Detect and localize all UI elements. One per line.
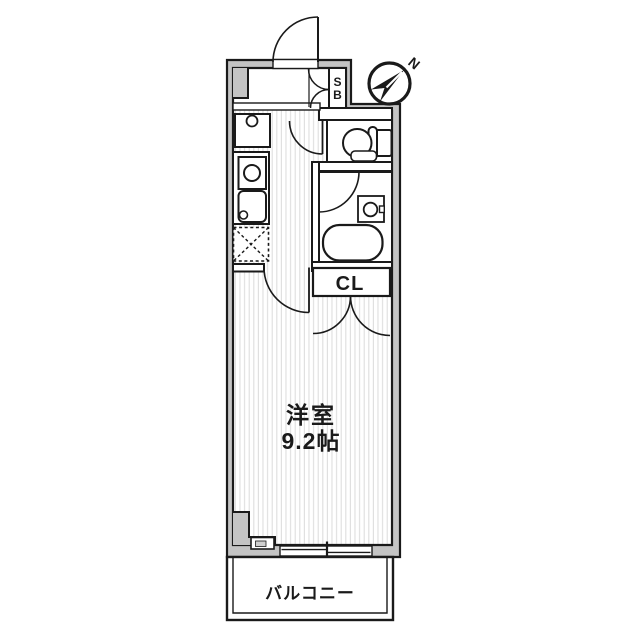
closet-label: CL xyxy=(336,273,365,295)
shoe-box-label-b: B xyxy=(333,88,342,102)
main-room-size-label: 9.2帖 xyxy=(282,428,341,454)
corner-column xyxy=(233,68,248,98)
partition-toilet-top xyxy=(319,108,392,120)
floorplan-drawing: N S B CL 洋室 9.2帖 バルコニー xyxy=(0,0,640,640)
shoe-box-label-s: S xyxy=(333,75,341,89)
entrance-step xyxy=(233,103,320,110)
bathtub xyxy=(323,225,383,261)
north-label: N xyxy=(405,54,423,73)
floorplan: N S B CL 洋室 9.2帖 バルコニー xyxy=(0,0,640,640)
entrance-door xyxy=(273,17,318,69)
washing-machine-space xyxy=(234,228,269,262)
partition-kitchen-room xyxy=(233,264,264,272)
step-box xyxy=(251,538,274,550)
toilet xyxy=(343,127,392,161)
balcony-label: バルコニー xyxy=(265,584,355,603)
stove-burner xyxy=(239,157,267,189)
partition-hall-bath xyxy=(312,162,319,271)
compass-icon xyxy=(369,63,410,104)
washbasin xyxy=(358,196,384,222)
main-room-label: 洋室 xyxy=(286,402,336,428)
kitchen-sink xyxy=(239,191,267,222)
partition-toilet-bath xyxy=(319,162,392,171)
water-heater xyxy=(235,114,270,147)
